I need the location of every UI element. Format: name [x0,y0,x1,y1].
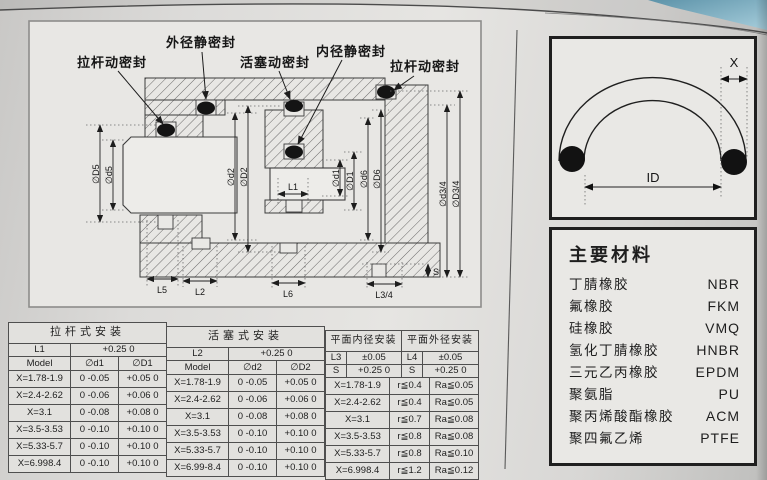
piston-rod [123,137,237,213]
dim-label-D6: ∅D6 [372,169,382,188]
table-cell: r≦1.2 [390,463,430,480]
table-cell: X=1.78-1.9 [326,378,390,395]
table-cell: 0 -0.08 [71,405,119,422]
data-row: X=3.5-3.530 -0.10+0.10 0 [167,426,325,443]
data-row: X=1.78-1.90 -0.05+0.05 0 [167,375,325,392]
catalog-page-photo: ∅D5 ∅d5 ∅d2 ∅D2 ∅d1 ∅D1 ∅d6 ∅D6 ∅d3/4 ∅D… [0,0,767,480]
material-code: ACM [706,408,740,424]
table-cell: r≦0.4 [390,378,430,395]
data-row: X=5.33-5.70 -0.10+0.10 0 [9,439,167,456]
dim-label-L2: L2 [195,287,205,297]
table-cell: Ra≦0.08 [430,429,479,446]
material-code: FKM [707,298,740,314]
table-cell: X=5.33-5.7 [167,443,229,460]
table-cell: +0.08 0 [277,409,325,426]
x-dim-label: X [730,55,739,70]
table-cell: X=5.33-5.7 [9,439,71,456]
table-title: 拉杆式安装 [9,323,167,344]
table-cell: r≦0.8 [390,429,430,446]
material-row: 丁腈橡胶NBR [569,273,740,295]
data-row: X=3.1r≦0.7Ra≦0.08 [326,412,479,429]
page-top-edge-2 [545,13,767,35]
data-row: X=5.33-5.70 -0.10+0.10 0 [167,443,325,460]
data-row: X=2.4-2.620 -0.06+0.06 0 [167,392,325,409]
table-cell: 0 -0.10 [229,426,277,443]
rod-install-table: 拉杆式安装L1+0.25 0Model∅d1∅D1X=1.78-1.90 -0.… [8,322,167,473]
material-code: NBR [707,276,740,292]
oring-figure-svg: X ID [552,39,754,217]
column-header-row: Model∅d1∅D1 [9,357,167,371]
table-cell: +0.06 0 [119,388,167,405]
data-row: X=6.99-8.40 -0.10+0.10 0 [167,460,325,477]
table-cell: Ra≦0.08 [430,412,479,429]
material-code: EPDM [696,364,740,380]
table-cell: X=3.1 [167,409,229,426]
column-header: Model [9,357,71,371]
table-cell: X=5.33-5.7 [326,446,390,463]
table-cell: 0 -0.10 [71,439,119,456]
cross-section-right [721,149,747,175]
table-cell: +0.08 0 [119,405,167,422]
table-cell: +0.05 0 [277,375,325,392]
dim-label-D1: ∅D1 [345,171,355,190]
table-cell: X=3.1 [9,405,71,422]
column-header-row: Model∅d2∅D2 [167,361,325,375]
material-name: 聚丙烯酸酯橡胶 [569,405,674,425]
column-header: ∅D2 [277,361,325,375]
dim-label-D2: ∅D2 [239,167,249,186]
callout-rod-seal-right: 拉杆动密封 [390,59,460,74]
table-cell: S [326,365,347,378]
data-row: X=2.4-2.62r≦0.4Ra≦0.05 [326,395,479,412]
material-row: 硅橡胶VMQ [569,317,740,339]
table-cell: 0 -0.10 [71,456,119,473]
table-cell: 0 -0.06 [71,388,119,405]
table-cell: X=2.4-2.62 [9,388,71,405]
data-row: X=6.998.40 -0.10+0.10 0 [9,456,167,473]
materials-panel: 主要材料 丁腈橡胶NBR氟橡胶FKM硅橡胶VMQ氢化丁腈橡胶HNBR三元乙丙橡胶… [549,227,757,466]
material-row: 三元乙丙橡胶EPDM [569,361,740,383]
materials-list: 丁腈橡胶NBR氟橡胶FKM硅橡胶VMQ氢化丁腈橡胶HNBR三元乙丙橡胶EPDM聚… [552,271,754,449]
material-name: 氢化丁腈橡胶 [569,339,659,359]
l-label: L2 [167,348,229,361]
l-label: L1 [9,344,71,357]
face-table-header: 平面内径安装平面外径安装L3±0.05L4±0.05S+0.25 0S+0.25… [325,330,479,378]
dim-label-S: S [433,267,439,277]
table-cell: X=3.1 [326,412,390,429]
material-name: 硅橡胶 [569,317,614,337]
table-cell: 0 -0.05 [71,371,119,388]
table-cell: X=3.5-3.53 [167,426,229,443]
table-cell: +0.06 0 [277,392,325,409]
table-cell: +0.25 0 [347,365,402,378]
table-cell: 0 -0.10 [71,422,119,439]
material-name: 聚四氟乙烯 [569,427,644,447]
face-table-body: X=1.78-1.9r≦0.4Ra≦0.05X=2.4-2.62r≦0.4Ra≦… [325,377,479,480]
table-cell: r≦0.8 [390,446,430,463]
material-name: 氟橡胶 [569,295,614,315]
table-cell: Ra≦0.05 [430,395,479,412]
l-tolerance: +0.25 0 [71,344,167,357]
table-title-row: 活塞式安装 [167,327,325,348]
dim-label-D34: ∅D3/4 [451,181,461,208]
rod-seal-oring-left [157,124,175,137]
tolerance-row: S+0.25 0S+0.25 0 [326,365,479,378]
data-row: X=1.78-1.9r≦0.4Ra≦0.05 [326,378,479,395]
table-title-row: 拉杆式安装 [9,323,167,344]
install-table: 活塞式安装L2+0.25 0Model∅d2∅D2X=1.78-1.90 -0.… [166,326,325,477]
dim-label-d6: ∅d6 [359,170,369,188]
table-cell: X=3.5-3.53 [9,422,71,439]
seal-cross-section-drawing: ∅D5 ∅d5 ∅d2 ∅D2 ∅d1 ∅D1 ∅d6 ∅D6 ∅d3/4 ∅D… [22,14,484,310]
table-cell: 0 -0.06 [229,392,277,409]
material-row: 氟橡胶FKM [569,295,740,317]
right-edge-shadow [756,0,767,480]
data-row: X=1.78-1.90 -0.05+0.05 0 [9,371,167,388]
material-row: 聚丙烯酸酯橡胶ACM [569,405,740,427]
callout-rod-seal-left: 拉杆动密封 [77,55,147,70]
piston-install-table: 活塞式安装L2+0.25 0Model∅d2∅D2X=1.78-1.90 -0.… [166,326,325,477]
dim-label-D5: ∅D5 [91,164,101,183]
table-cell: Ra≦0.12 [430,463,479,480]
table-cell: r≦0.4 [390,395,430,412]
material-code: VMQ [705,320,740,336]
materials-title: 主要材料 [552,230,754,271]
column-header: ∅D1 [119,357,167,371]
table-cell: +0.25 0 [423,365,479,378]
table-cell: +0.10 0 [277,443,325,460]
callout-piston-seal: 活塞动密封 [240,55,310,70]
table-cell: +0.10 0 [119,439,167,456]
id-static-oring [285,146,303,159]
data-row: X=2.4-2.620 -0.06+0.06 0 [9,388,167,405]
table-cell: ±0.05 [347,352,402,365]
data-row: X=3.10 -0.08+0.08 0 [167,409,325,426]
material-row: 氢化丁腈橡胶HNBR [569,339,740,361]
data-row: X=6.998.4r≦1.2Ra≦0.12 [326,463,479,480]
dim-label-d2: ∅d2 [226,168,236,186]
dim-label-d5: ∅d5 [104,166,114,184]
l-tolerance: +0.25 0 [229,348,325,361]
oring-dimension-figure: X ID [549,36,757,220]
column-divider-line [505,30,517,469]
dim-label-d34: ∅d3/4 [438,181,448,206]
table-cell: 0 -0.08 [229,409,277,426]
face-install-table: 平面内径安装平面外径安装L3±0.05L4±0.05S+0.25 0S+0.25… [325,330,479,480]
table-cell: X=6.99-8.4 [167,460,229,477]
column-header: ∅d1 [71,357,119,371]
table-cell: L3 [326,352,347,365]
blue-page-corner [648,0,767,30]
callout-id-static-seal: 内径静密封 [316,44,386,59]
tolerance-row: L3±0.05L4±0.05 [326,352,479,365]
dim-label-L5: L5 [157,285,167,295]
table-cell: Ra≦0.05 [430,378,479,395]
install-table: 拉杆式安装L1+0.25 0Model∅d1∅D1X=1.78-1.90 -0.… [8,322,167,473]
data-row: X=5.33-5.7r≦0.8Ra≦0.10 [326,446,479,463]
data-row: X=3.5-3.530 -0.10+0.10 0 [9,422,167,439]
table-cell: +0.10 0 [277,426,325,443]
piston-seal-oring [285,100,303,112]
table-cell: X=2.4-2.62 [167,392,229,409]
torus-outer-arc [559,78,746,161]
material-code: HNBR [696,342,740,358]
callout-od-static-seal: 外径静密封 [165,35,236,50]
material-row: 聚四氟乙烯PTFE [569,427,740,449]
table-cell: +0.05 0 [119,371,167,388]
tolerance-row: L1+0.25 0 [9,344,167,357]
table-cell: Ra≦0.10 [430,446,479,463]
dim-label-L34: L3/4 [375,290,393,300]
material-row: 聚氨脂PU [569,383,740,405]
table-cell: L4 [402,352,423,365]
table-cell: X=1.78-1.9 [167,375,229,392]
table-title-inner: 平面内径安装 [326,331,402,352]
material-name: 三元乙丙橡胶 [569,361,659,381]
table-cell: +0.10 0 [119,422,167,439]
table-cell: 0 -0.05 [229,375,277,392]
table-cell: X=3.5-3.53 [326,429,390,446]
dim-label-L1: L1 [288,182,298,192]
column-header: ∅d2 [229,361,277,375]
table-cell: X=6.998.4 [326,463,390,480]
table-cell: +0.10 0 [277,460,325,477]
dim-label-d1: ∅d1 [331,169,341,187]
table-title-outer: 平面外径安装 [402,331,479,352]
od-static-oring [197,102,215,115]
table-cell: 0 -0.10 [229,460,277,477]
table-cell: 0 -0.10 [229,443,277,460]
data-row: X=3.10 -0.08+0.08 0 [9,405,167,422]
torus-inner-arc [584,101,721,161]
dim-label-L6: L6 [283,289,293,299]
table-title-row: 平面内径安装平面外径安装 [326,331,479,352]
table-cell: ±0.05 [423,352,479,365]
table-title: 活塞式安装 [167,327,325,348]
table-cell: X=6.998.4 [9,456,71,473]
material-code: PU [719,386,740,402]
column-header: Model [167,361,229,375]
cross-section-left [559,146,585,172]
material-code: PTFE [700,430,740,446]
rod-seal-oring-right [377,86,395,99]
tolerance-row: L2+0.25 0 [167,348,325,361]
table-cell: S [402,365,423,378]
table-cell: +0.10 0 [119,456,167,473]
id-dim-label: ID [647,170,660,185]
table-cell: r≦0.7 [390,412,430,429]
table-cell: X=2.4-2.62 [326,395,390,412]
material-name: 聚氨脂 [569,383,614,403]
table-cell: X=1.78-1.9 [9,371,71,388]
data-row: X=3.5-3.53r≦0.8Ra≦0.08 [326,429,479,446]
material-name: 丁腈橡胶 [569,273,629,293]
